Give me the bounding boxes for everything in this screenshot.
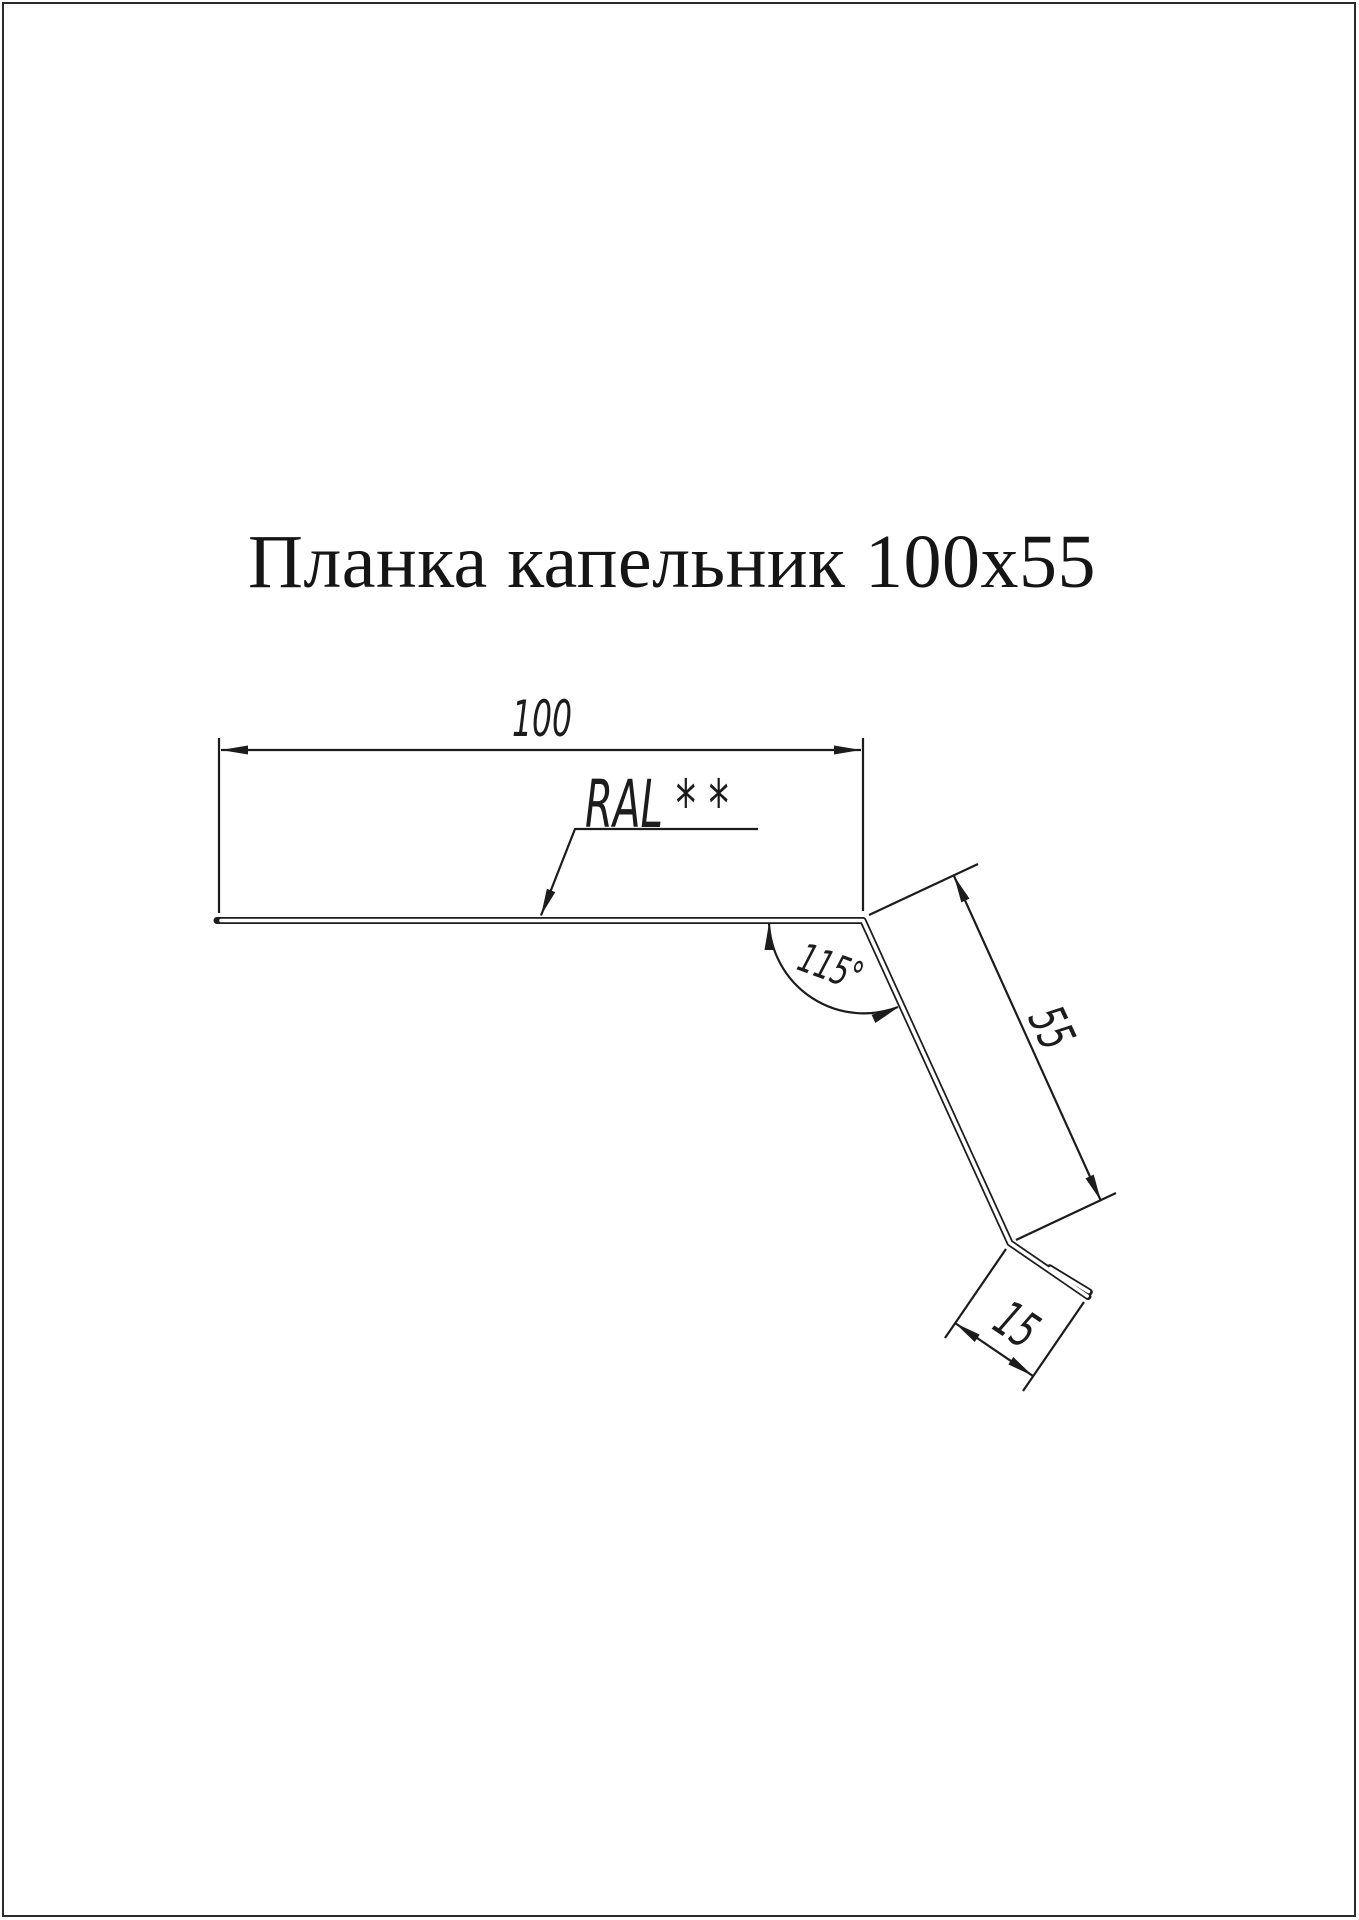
angle-dimension: 115° [765,923,899,1023]
profile-outline [217,921,1088,1297]
slope-arrow-bottom [1086,1175,1102,1201]
width-dimension-label: 100 [512,689,572,748]
ral-leader: RAL * * [541,765,758,915]
width-dimension: 100 [219,689,863,913]
hook-arrow-right [1008,1357,1033,1376]
angle-arrow-top [765,923,774,950]
ral-leader-arrow [541,889,555,916]
slope-dimension-label: 55 [1017,997,1087,1058]
flashing-profile [217,921,1089,1297]
drawing-sheet: Планка капельник 100х55 100 RAL * * [0,0,1359,1920]
ral-label: RAL * * [585,765,729,842]
slope-arrow-top [954,876,970,902]
width-arrow-right [834,746,861,755]
profile-drawing: 100 RAL * * 115° 55 [0,0,1359,1920]
hook-arrow-left [955,1323,980,1342]
slope-dimension: 55 [869,864,1116,1240]
hem-fold-core [1050,1268,1088,1291]
angle-arrow-slope [872,1008,898,1024]
width-arrow-left [221,746,248,755]
profile-core [221,921,1087,1297]
hook-dimension: 15 [945,1249,1084,1391]
